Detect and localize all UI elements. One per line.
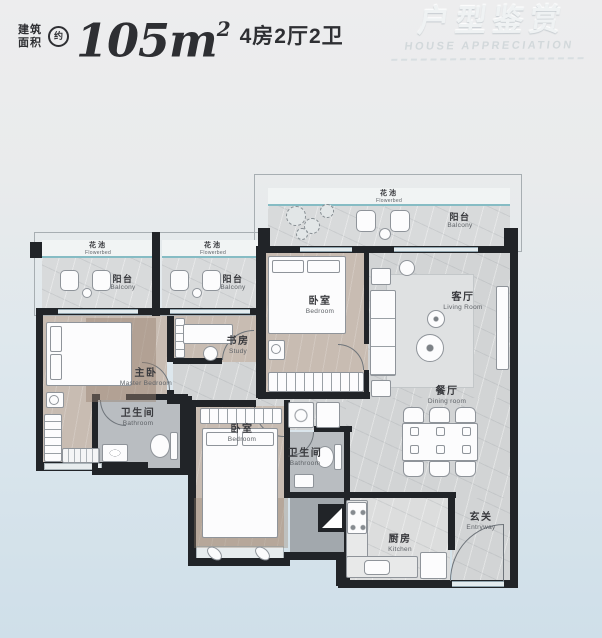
kitchen-sink-icon (364, 560, 390, 575)
room-label-entryway: 玄关Entryway (466, 512, 495, 532)
dining-chair-icon (403, 461, 424, 477)
sofa-icon (370, 290, 396, 376)
desk-chair-icon (203, 346, 218, 361)
fridge-icon (420, 552, 447, 579)
place-setting (462, 445, 471, 454)
shaft-icon (318, 504, 346, 532)
wall (258, 246, 518, 253)
window (300, 247, 352, 252)
room-label-bedroom: 卧室Bedroom (306, 296, 334, 316)
place-setting (436, 445, 445, 454)
desk-icon (183, 324, 233, 344)
room-label-dining-room: 餐厅Dining room (428, 386, 466, 406)
balcony-chair-icon (92, 270, 111, 291)
tv-cabinet-icon (496, 286, 509, 370)
approx-badge: 约 (48, 26, 69, 47)
place-setting (436, 427, 445, 436)
place-setting (410, 427, 419, 436)
wall (510, 246, 518, 588)
balcony-table-icon (192, 288, 202, 298)
sink-icon (294, 474, 314, 488)
lamp-icon (271, 344, 281, 354)
wall (92, 468, 188, 475)
room-label-bathroom: 卫生间Bathroom (288, 448, 323, 468)
place-setting (462, 427, 471, 436)
wall (180, 394, 188, 474)
wall (188, 558, 290, 566)
wardrobe-icon (44, 414, 62, 462)
pillow (272, 260, 304, 273)
plant-icon (286, 206, 306, 226)
side-table-icon (371, 380, 391, 397)
lamp-icon (49, 395, 59, 405)
wall (36, 308, 43, 470)
toilet-tank (334, 444, 342, 470)
floor-lamp-icon (399, 260, 415, 276)
window (170, 309, 250, 314)
watermark-title: 户型鉴赏 (387, 3, 598, 39)
balcony-chair-icon (356, 210, 376, 232)
sink-icon (102, 444, 128, 462)
room-label-flowerbed: 花池Flowerbed (200, 242, 226, 256)
window (394, 247, 478, 252)
room-label-flowerbed: 花池Flowerbed (376, 190, 402, 204)
pillow (307, 260, 340, 273)
room-label-kitchen: 厨房Kitchen (388, 534, 412, 554)
dining-chair-icon (455, 461, 476, 477)
area-superscript: 2 (217, 17, 230, 41)
coffee-table-icon (416, 334, 444, 362)
balcony-chair-icon (60, 270, 79, 291)
pillow (50, 326, 62, 352)
area-number: 105m (76, 13, 217, 67)
room-label-bathroom: 卫生间Bathroom (121, 408, 156, 428)
area-value: 105m2 (76, 10, 230, 63)
toilet-tank (170, 432, 178, 460)
stove-icon (347, 502, 367, 534)
room-label-study: 书房Study (227, 336, 250, 356)
watermark-subtitle: HOUSE APPRECIATION (385, 39, 593, 54)
plant-icon (320, 204, 334, 218)
entry-threshold (452, 581, 504, 587)
balcony-table-icon (379, 228, 391, 240)
coffee-table-icon (427, 310, 445, 328)
wall (196, 400, 256, 407)
room-label-master-bedroom: 主卧Master Bedroom (120, 368, 172, 388)
wall (256, 246, 266, 398)
dining-chair-icon (403, 407, 424, 423)
area-label-line2: 面积 (18, 37, 42, 50)
watermark-dashed-line (391, 57, 583, 61)
shaft-triangle (322, 508, 342, 528)
wall (152, 232, 160, 316)
side-table-icon (371, 268, 391, 285)
washer-icon (288, 402, 314, 428)
place-setting (410, 445, 419, 454)
toilet-icon (150, 434, 170, 458)
wall (336, 552, 346, 586)
area-label-line1: 建筑 (18, 24, 42, 37)
room-label-balcony: 阳台Balcony (447, 212, 472, 230)
wall (364, 252, 369, 344)
window (58, 309, 138, 314)
wall (338, 492, 456, 498)
wall (167, 316, 174, 362)
cabinet-icon (316, 402, 340, 428)
closet-icon (62, 448, 100, 463)
room-label-living-room: 客厅Living Room (443, 292, 482, 312)
header: 建筑 面积 约 105m2 4房2厅2卫 (18, 10, 344, 63)
dining-chair-icon (429, 461, 450, 477)
room-label-bedroom: 卧室Bedroom (228, 424, 256, 444)
balcony-chair-icon (202, 270, 221, 291)
balcony-chair-icon (170, 270, 189, 291)
room-label-flowerbed: 花池Flowerbed (85, 242, 111, 256)
dining-chair-icon (455, 407, 476, 423)
room-label-balcony: 阳台Balcony (220, 274, 245, 292)
floorplan-page: 建筑 面积 约 105m2 4房2厅2卫 户型鉴赏 HOUSE APPRECIA… (0, 0, 602, 638)
wardrobe-icon (268, 372, 364, 392)
wall (258, 392, 370, 399)
wall (448, 492, 455, 550)
layout-spec: 4房2厅2卫 (240, 26, 344, 48)
plant-icon (296, 228, 308, 240)
balcony-chair-icon (390, 210, 410, 232)
pillow (50, 354, 62, 380)
wall (30, 242, 42, 258)
wardrobe-icon (200, 408, 282, 424)
watermark: 户型鉴赏 HOUSE APPRECIATION (384, 3, 598, 61)
wall (284, 492, 346, 498)
balcony-table-icon (82, 288, 92, 298)
room-label-balcony: 阳台Balcony (110, 274, 135, 292)
area-label: 建筑 面积 (18, 24, 42, 49)
dining-chair-icon (429, 407, 450, 423)
